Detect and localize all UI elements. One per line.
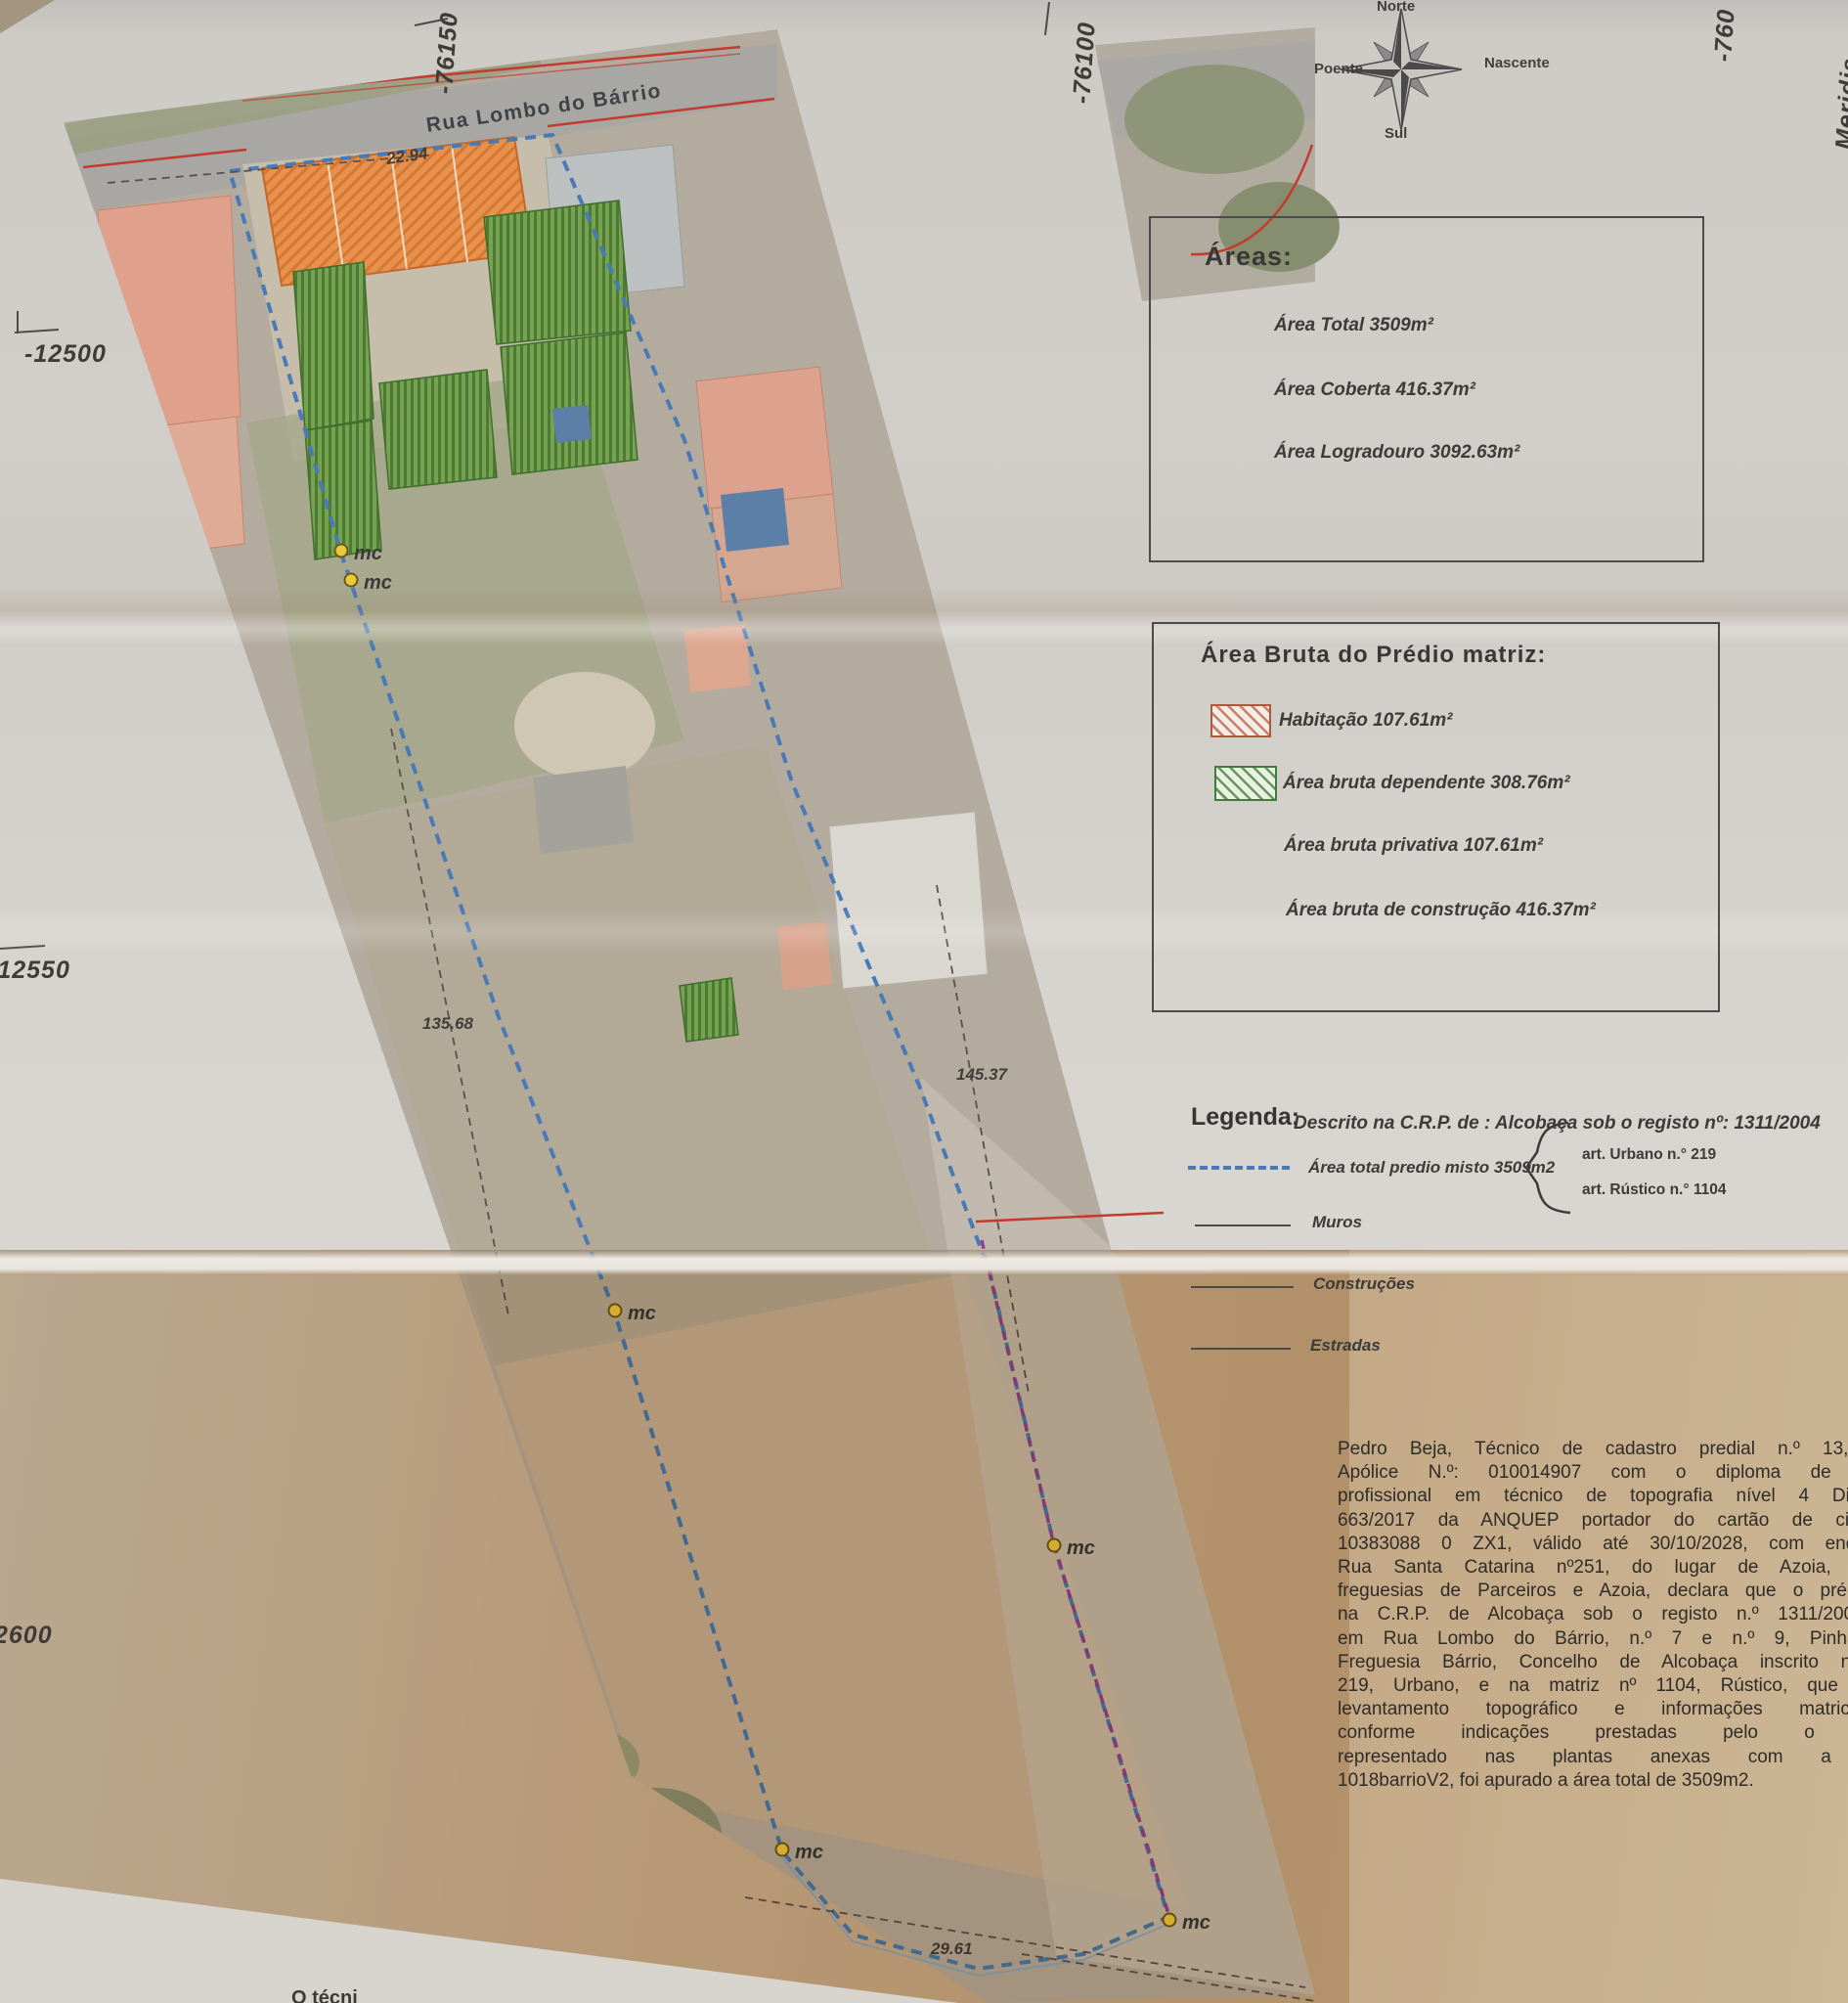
declaration-line: em Rua Lombo do Bárrio, n.º 7 e n.º 9, P…	[1338, 1627, 1848, 1651]
grid-label-760: -760	[1709, 8, 1741, 63]
dim-right: 145.37	[956, 1065, 1009, 1084]
area-total: Área Total 3509m²	[1274, 315, 1433, 336]
estradas-label: Estradas	[1310, 1336, 1381, 1356]
declaration-line: 1018barrioV2, foi apurado a área total d…	[1338, 1769, 1848, 1793]
declaration-line: conforme indicações prestadas pelo o pro…	[1338, 1721, 1848, 1745]
declaration-line: profissional em técnico de topografia ní…	[1338, 1485, 1848, 1508]
muros-label: Muros	[1312, 1213, 1362, 1232]
muros-line-swatch	[1195, 1224, 1291, 1226]
construcoes-line-swatch	[1191, 1286, 1294, 1288]
area-logradouro: Área Logradouro 3092.63m²	[1274, 442, 1519, 464]
declaration-line: 219, Urbano, e na matriz nº 1104, Rústic…	[1338, 1674, 1848, 1698]
compass-rose: Norte Poente Nascente Sul	[1300, 0, 1516, 147]
grid-label-76100: -76100	[1068, 21, 1102, 105]
areas-box: Áreas: Área Total 3509m² Área Coberta 41…	[1149, 216, 1704, 562]
blue-panels	[721, 488, 789, 552]
construcao-label: Área bruta de construção 416.37m²	[1286, 900, 1596, 921]
declaration-line: na C.R.P. de Alcobaça sob o registo n.º …	[1338, 1603, 1848, 1626]
dirt-patch	[514, 672, 655, 779]
construcoes-label: Construções	[1313, 1274, 1415, 1294]
tree	[557, 1731, 639, 1794]
building-white	[829, 812, 988, 989]
declaration-line: Pedro Beja, Técnico de cadastro predial …	[1338, 1438, 1848, 1461]
declaration-line: representado nas plantas anexas com a de…	[1338, 1746, 1848, 1769]
building-salmon-left2	[115, 417, 244, 558]
declaration-line: levantamento topográfico e informações m…	[1338, 1698, 1848, 1721]
grid-label-12550: -12550	[0, 957, 70, 985]
building-salmon-left	[98, 196, 241, 431]
scanned-survey-plan: mc mc mc mc mc mc Rua Lombo do Bárrio 22…	[0, 0, 1848, 2003]
marker-label: mc	[354, 543, 382, 564]
marker-label: mc	[628, 1303, 656, 1324]
dim-left: 135.68	[422, 1014, 474, 1033]
marker-label: mc	[1067, 1537, 1095, 1559]
sheet-fold-edge	[0, 1250, 1848, 1275]
legend-title: Legenda:	[1191, 1103, 1299, 1132]
estradas-line-swatch	[1191, 1348, 1291, 1350]
declaration-line: Apólice N.º: 010014907 com o diploma de …	[1338, 1461, 1848, 1485]
areas-box-title: Áreas:	[1205, 242, 1293, 272]
privativa-label: Área bruta privativa 107.61m²	[1284, 835, 1543, 857]
roof-grey	[533, 766, 634, 854]
compass-east-label: Nascente	[1484, 55, 1550, 71]
grid-label-12600: 2600	[0, 1622, 53, 1650]
building-salmon-right	[696, 367, 833, 509]
habitacao-hatch-swatch	[1210, 704, 1271, 737]
bottom-partial-text: O técni	[291, 1987, 358, 2003]
legend-art-urbano: art. Urbano n.° 219	[1582, 1146, 1716, 1164]
area-bruta-title: Área Bruta do Prédio matriz:	[1201, 642, 1546, 669]
declaration-line: Rua Santa Catarina nº251, do lugar de Az…	[1338, 1556, 1848, 1580]
declaration-line: 663/2017 da ANQUEP portador do cartão de…	[1338, 1509, 1848, 1533]
blue-panel	[552, 405, 592, 443]
grid-label-12500: -12500	[24, 340, 107, 369]
brace	[1518, 1119, 1572, 1223]
grid-label-76150: -76150	[430, 11, 464, 95]
compass-north-label: Norte	[1377, 0, 1415, 15]
dependente-hatch-swatch	[1214, 766, 1277, 801]
declaration-line: 10383088 0 ZX1, válido até 30/10/2028, c…	[1338, 1533, 1848, 1556]
marker-label: mc	[1182, 1912, 1210, 1934]
marker-label: mc	[795, 1842, 823, 1863]
dependente-label: Área bruta dependente 308.76m²	[1283, 773, 1570, 794]
area-coberta: Área Coberta 416.37m²	[1274, 379, 1475, 401]
compass-south-label: Sul	[1385, 125, 1407, 142]
legend-art-rustico: art. Rústico n.° 1104	[1582, 1181, 1726, 1199]
declaration-line: Freguesia Bárrio, Concelho de Alcobaça i…	[1338, 1651, 1848, 1674]
habitacao-label: Habitação 107.61m²	[1279, 710, 1452, 732]
declaration-line: freguesias de Parceiros e Azoia, declara…	[1338, 1580, 1848, 1603]
compass-west-label: Poente	[1314, 61, 1363, 77]
surveyor-declaration: Pedro Beja, Técnico de cadastro predial …	[1338, 1438, 1848, 1793]
dim-bottom: 29.61	[930, 1939, 973, 1958]
tree	[593, 1788, 722, 1882]
legend-dashed-line-swatch	[1188, 1166, 1290, 1170]
orthophoto-band	[64, 29, 1315, 2003]
area-bruta-box: Área Bruta do Prédio matriz: Habitação 1…	[1152, 622, 1720, 1012]
